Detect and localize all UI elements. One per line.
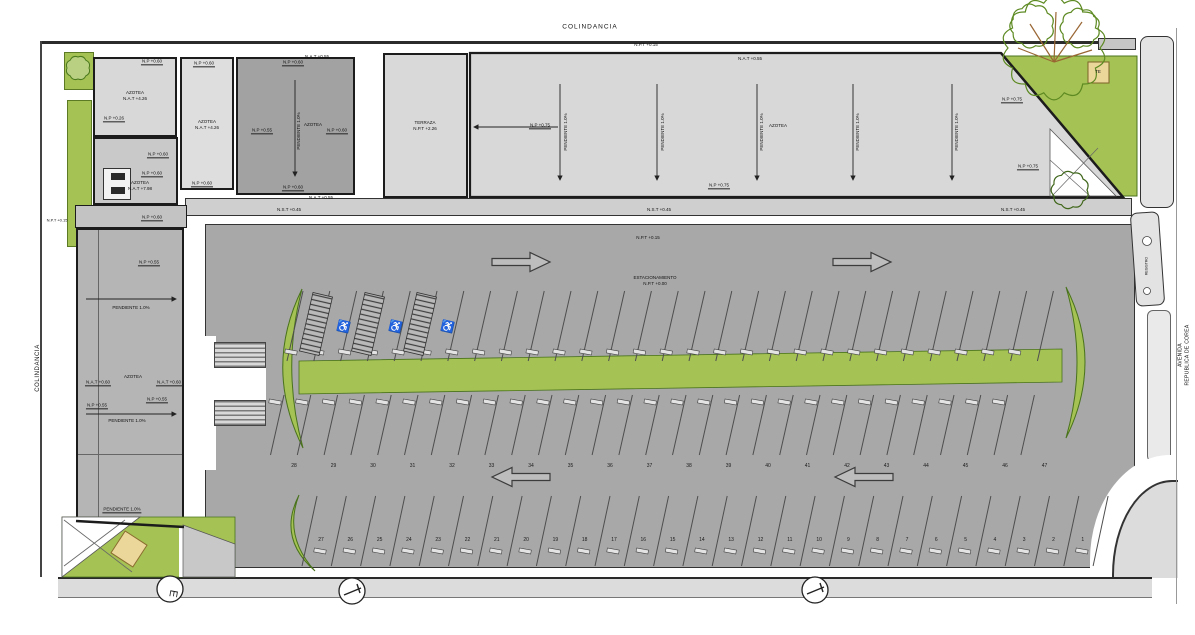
traffic-arrow [492, 468, 550, 487]
annotation-line: N.P.T +2.26 [413, 126, 436, 132]
annotation-terraza: TERRAZAN.P.T +2.26 [413, 120, 436, 132]
annotation-pendiente: PENDIENTE 1.0% [108, 418, 145, 424]
annotation-np-055: N.P +0.55 [138, 259, 160, 266]
equipment-unit [111, 187, 125, 194]
annotation-west-edge-level: N.P.T +0.15 [47, 217, 68, 222]
tree-topleft [66, 56, 89, 79]
svg-text:31: 31 [410, 463, 416, 469]
stall-numbers-middle: 2829303132333435363738394041424344454647 [291, 463, 1047, 469]
svg-text:5: 5 [964, 537, 967, 543]
green-island-right [1066, 287, 1085, 438]
svg-text:38: 38 [686, 463, 692, 469]
svg-text:7: 7 [906, 537, 909, 543]
parking-title: ESTACIONAMIENTO N.P.T +0.00 [633, 275, 676, 287]
svg-text:30: 30 [370, 463, 376, 469]
svg-text:22: 22 [465, 537, 471, 543]
annotation-np-075: N.P +0.75 [529, 122, 551, 129]
svg-text:21: 21 [494, 537, 500, 543]
svg-text:♿: ♿ [440, 319, 457, 335]
annotation-pendiente: PENDIENTE 1.0% [296, 112, 302, 149]
svg-text:4: 4 [994, 537, 997, 543]
svg-text:35: 35 [568, 463, 574, 469]
annotation-azotea: AZOTEA [769, 123, 787, 129]
svg-text:34: 34 [528, 463, 534, 469]
svg-text:37: 37 [647, 463, 653, 469]
svg-text:43: 43 [884, 463, 890, 469]
annotation-np-075: N.P +0.75 [708, 182, 730, 189]
annotation-np-060: N.P +0.60 [282, 59, 304, 66]
svg-text:28: 28 [291, 463, 297, 469]
annotation-pendiente: PENDIENTE 1.0% [759, 113, 765, 150]
avenue-label-line2: REPUBLICA DE COREA [1184, 325, 1191, 386]
annotation-np-060: N.P +0.60 [282, 184, 304, 191]
svg-text:13: 13 [728, 537, 734, 543]
annotation-line: AZOTEA [123, 90, 147, 96]
svg-text:23: 23 [435, 537, 441, 543]
svg-text:19: 19 [553, 537, 559, 543]
annotation-azotea: AZOTEA [304, 122, 322, 128]
annotation-np-060: N.P +0.60 [326, 127, 348, 134]
annotation-nst-045: N.S.T +0.45 [1001, 207, 1025, 213]
annotation-pendiente: PENDIENTE 1.0% [954, 113, 960, 150]
svg-text:♿: ♿ [388, 319, 405, 335]
svg-text:16: 16 [641, 537, 647, 543]
svg-text:8: 8 [876, 537, 879, 543]
svg-text:25: 25 [377, 537, 383, 543]
annotation-np-060: N.P +0.60 [193, 60, 215, 67]
annotation-np-075: N.P +0.75 [1017, 163, 1039, 170]
annotation-nat-055: N.A.T +0.55 [305, 54, 329, 60]
annotation-nat-055: N.A.T +0.55 [309, 195, 333, 201]
stall-numbers-bottom: 2726252423222120191817161514131211109876… [318, 537, 1084, 543]
registro-label: REGISTRO [1145, 257, 1150, 275]
svg-text:1: 1 [1081, 537, 1084, 543]
annotation-nat-055: N.A.T +0.55 [738, 56, 762, 62]
parking-title-level: N.P.T +0.00 [633, 281, 676, 287]
annotation-pendiente: PENDIENTE 1.0% [112, 305, 149, 311]
annotation-nat-060: N.A.T +0.60 [85, 379, 111, 386]
annotation-line: N.A.T +4.26 [123, 96, 147, 102]
annotation-line: N.A.T +4.26 [195, 125, 219, 131]
svg-text:36: 36 [607, 463, 613, 469]
building-roof-long [470, 53, 1137, 197]
svg-text:33: 33 [489, 463, 495, 469]
annotation-np-075: N.P +0.75 [1001, 96, 1023, 103]
svg-text:44: 44 [923, 463, 929, 469]
svg-text:20: 20 [523, 537, 529, 543]
traffic-arrow [835, 468, 893, 487]
annotation-surface-level: N.P.T +0.15 [636, 235, 659, 241]
annotation-np-060: N.P +0.60 [147, 151, 169, 158]
svg-text:11: 11 [787, 537, 792, 543]
boundary-top-label: COLINDANCIA [562, 24, 617, 31]
svg-text:42: 42 [844, 463, 850, 469]
svg-text:41: 41 [805, 463, 811, 469]
traffic-arrow [833, 253, 891, 272]
svg-text:46: 46 [1002, 463, 1008, 469]
annotation-line: AZOTEA [195, 119, 219, 125]
annotation-np-055: N.P +0.55 [86, 402, 108, 409]
svg-text:29: 29 [331, 463, 337, 469]
annotation-top-boundary-level: N.P.T +0.15 [634, 42, 657, 48]
svg-text:40: 40 [765, 463, 771, 469]
annotation-pendiente: PENDIENTE 1.0% [660, 113, 666, 150]
annotation-np-060: N.P +0.60 [141, 170, 163, 177]
annotation-nst-045: N.S.T +0.45 [277, 207, 301, 213]
equipment-box [103, 168, 131, 200]
svg-text:2: 2 [1052, 537, 1055, 543]
annotation-azotea: AZOTEAN.A.T +7.98 [128, 180, 152, 192]
svg-text:6: 6 [935, 537, 938, 543]
svg-text:10: 10 [816, 537, 822, 543]
annotation-azotea: AZOTEA [124, 374, 142, 380]
svg-text:9: 9 [847, 537, 850, 543]
annotation-line: N.A.T +7.98 [128, 186, 152, 192]
svg-text:39: 39 [726, 463, 732, 469]
svg-text:17: 17 [611, 537, 617, 543]
svg-text:27: 27 [318, 537, 324, 543]
svg-text:45: 45 [963, 463, 969, 469]
annotation-azotea: AZOTEAN.A.T +4.26 [123, 90, 147, 102]
svg-text:14: 14 [699, 537, 705, 543]
svg-text:24: 24 [406, 537, 412, 543]
annotation-line: TERRAZA [413, 120, 436, 126]
svg-text:18: 18 [582, 537, 588, 543]
annotation-nst-045: N.S.T +0.45 [647, 207, 671, 213]
boundary-left-label: COLINDANCIA [35, 344, 41, 392]
annotation-azotea: AZOTEAN.A.T +4.26 [195, 119, 219, 131]
annotation-np-026: N.P +0.26 [103, 115, 125, 122]
annotation-pendiente: PENDIENTE 1.0% [102, 506, 141, 513]
svg-text:15: 15 [670, 537, 676, 543]
annotation-pendiente: PENDIENTE 1.0% [563, 113, 569, 150]
annotation-pendiente: PENDIENTE 1.0% [855, 113, 861, 150]
annotation-np-060: N.P +0.60 [141, 58, 163, 65]
site-plan: ♿♿♿2829303132333435363738394041424344454… [0, 0, 1195, 635]
avenue-label: AVENIDA REPUBLICA DE COREA [1178, 325, 1191, 386]
plan-linework: ♿♿♿2829303132333435363738394041424344454… [0, 0, 1195, 635]
svg-text:12: 12 [758, 537, 764, 543]
parking-title-name: ESTACIONAMIENTO [633, 275, 676, 281]
annotation-np-060: N.P +0.60 [141, 214, 163, 221]
parking-median-green [299, 349, 1062, 394]
svg-text:3: 3 [1023, 537, 1026, 543]
annotation-np-055: N.P +0.55 [146, 396, 168, 403]
handicap-stalls: ♿♿♿ [300, 293, 457, 356]
te-box-label: TE [1095, 69, 1101, 75]
annotation-np-055: N.P +0.55 [251, 127, 273, 134]
svg-text:32: 32 [449, 463, 455, 469]
svg-text:47: 47 [1042, 463, 1048, 469]
traffic-arrow [492, 253, 550, 272]
equipment-unit [111, 173, 125, 180]
annotation-np-060: N.P +0.60 [191, 180, 213, 187]
annotation-line: AZOTEA [128, 180, 152, 186]
svg-text:26: 26 [348, 537, 354, 543]
annotation-nat-060: N.A.T +0.60 [156, 379, 182, 386]
